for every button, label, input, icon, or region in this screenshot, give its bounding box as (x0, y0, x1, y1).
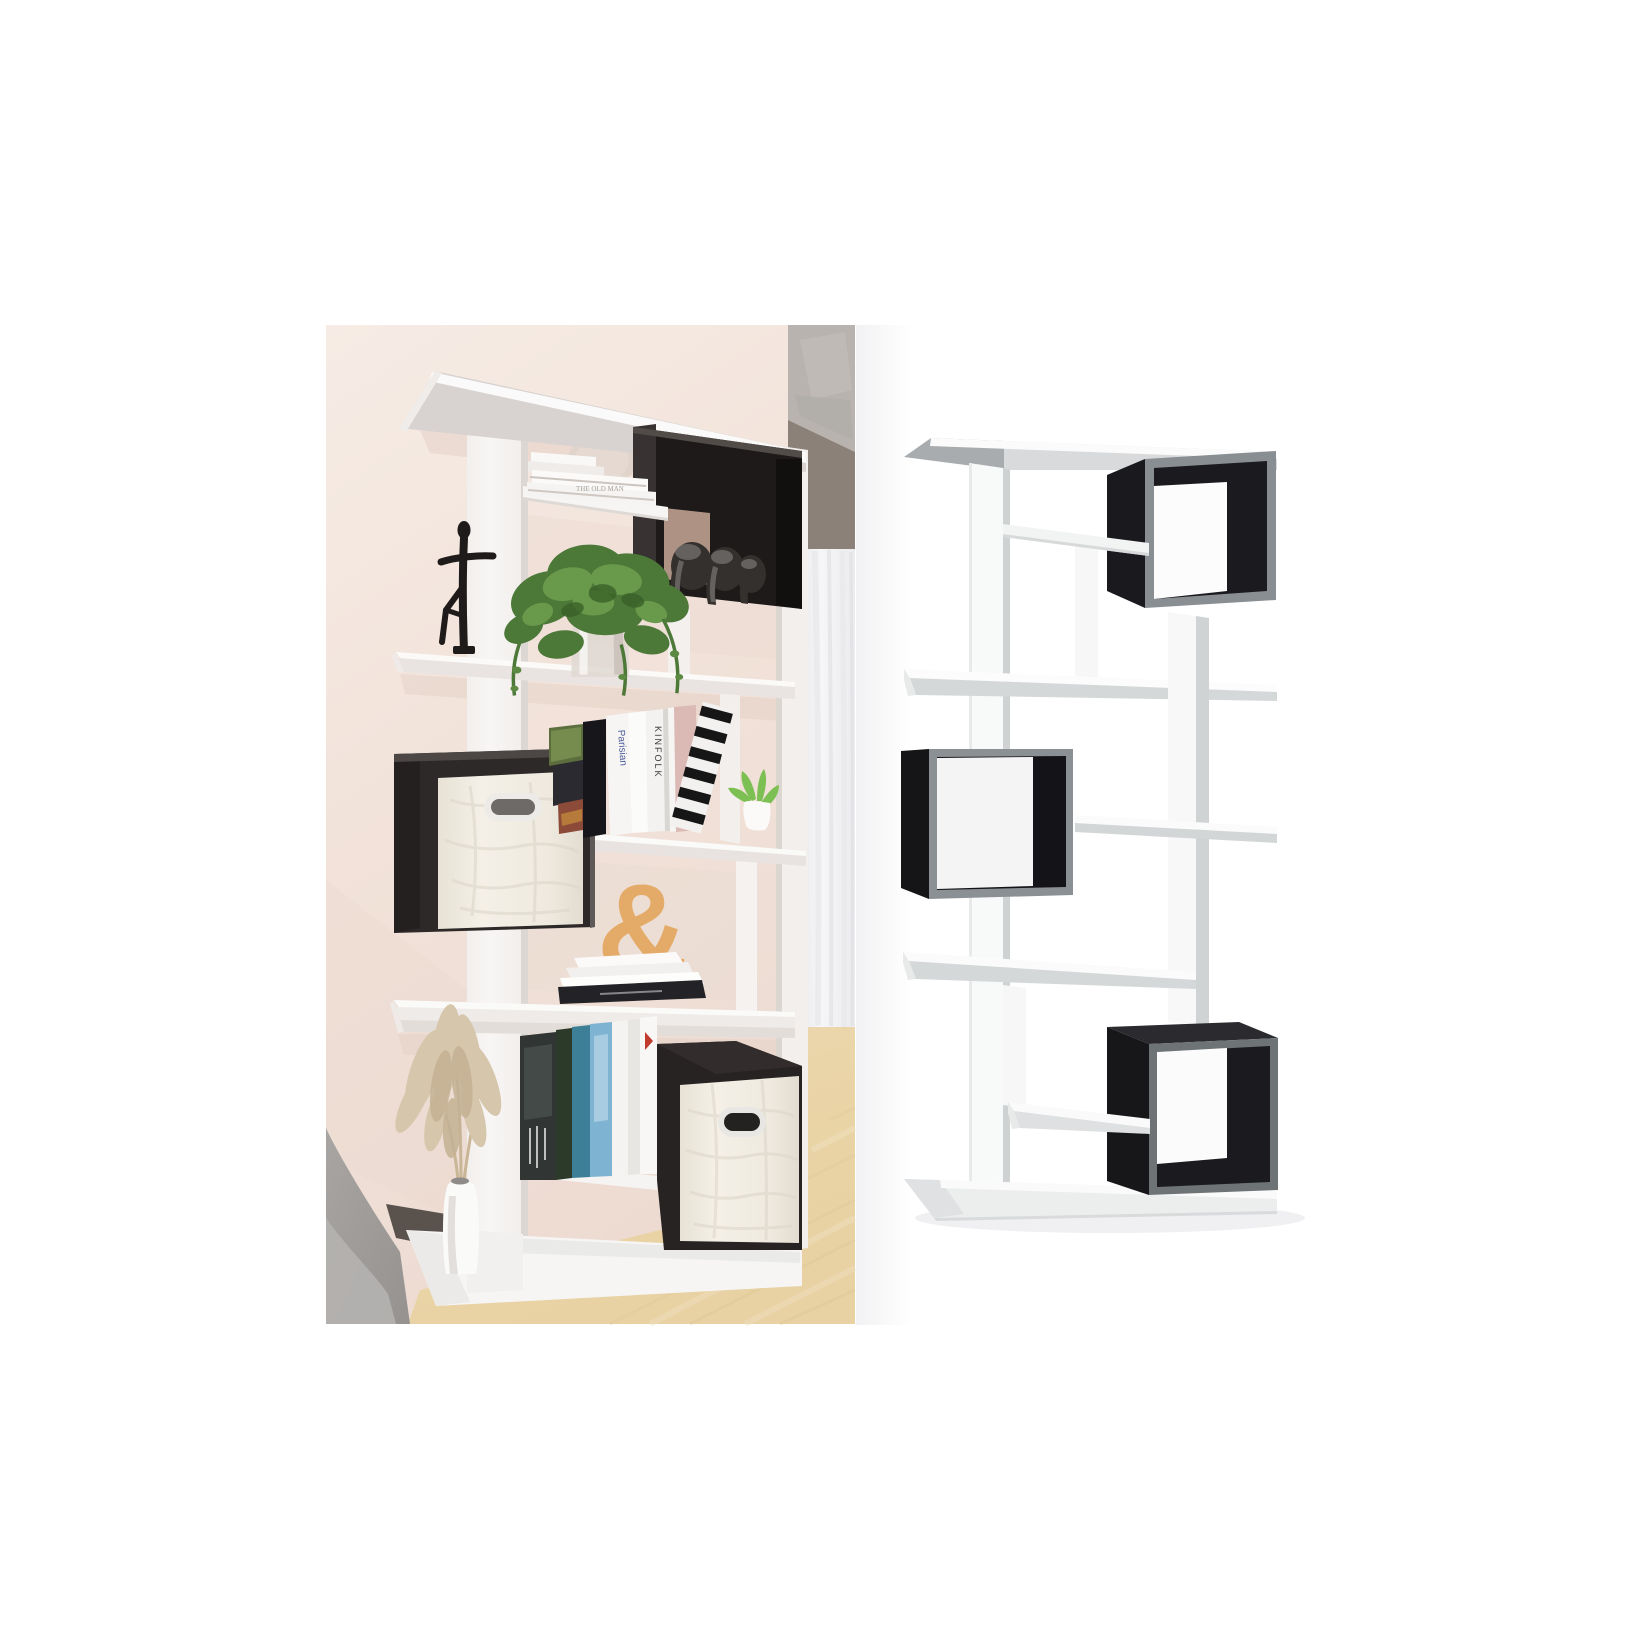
svg-text:KINFOLK: KINFOLK (653, 726, 663, 779)
svg-text:THE OLD MAN: THE OLD MAN (576, 485, 624, 493)
